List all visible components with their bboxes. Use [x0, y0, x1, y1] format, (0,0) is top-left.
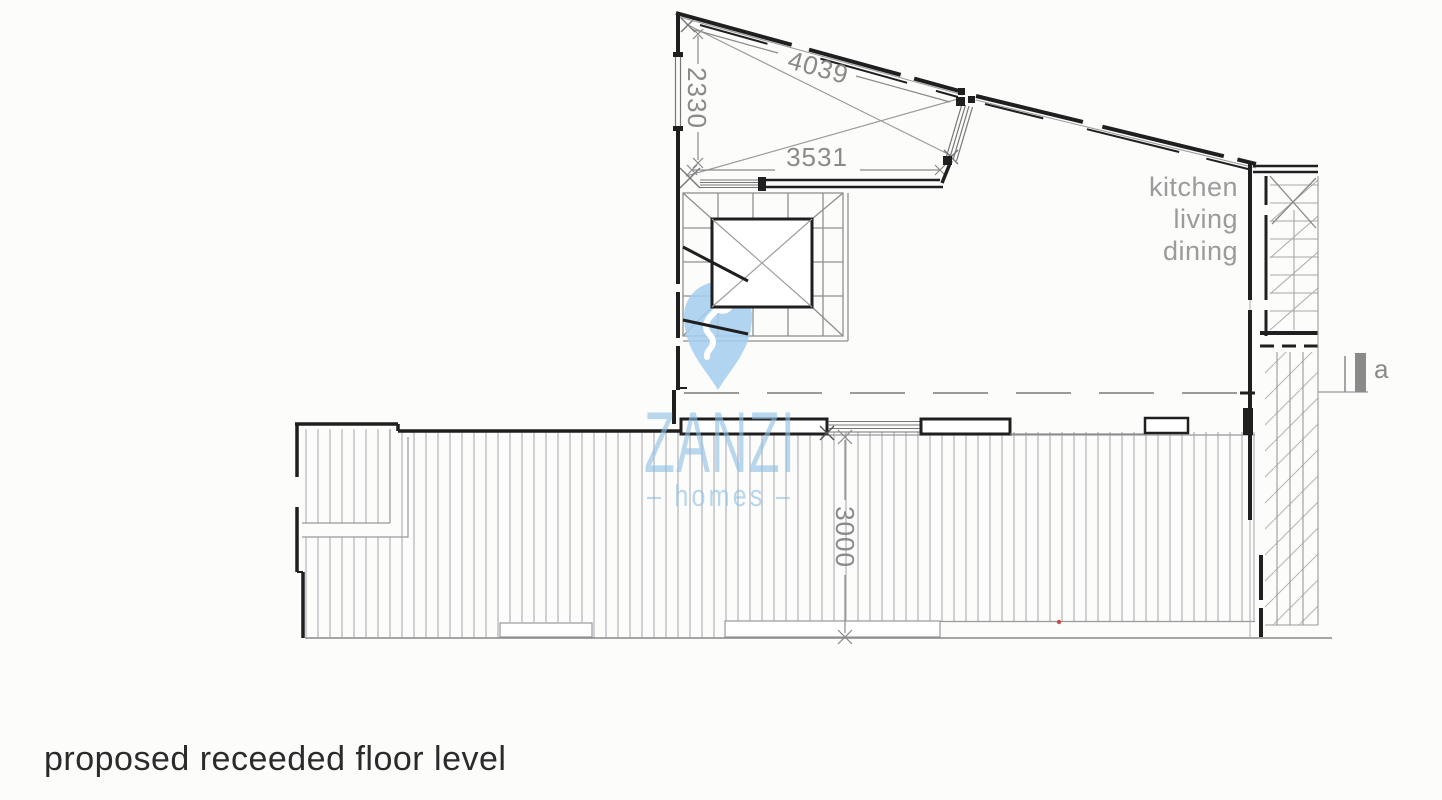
dimension-3531: 3531: [786, 142, 848, 172]
terrace-decking: [302, 429, 1332, 638]
floor-plan-page: a 4039 2330 3531 3000 kitchen living din…: [0, 0, 1442, 800]
room-label-living: living: [1173, 204, 1238, 234]
watermark-tagline: – homes –: [647, 478, 793, 513]
hatched-shaft: [1265, 176, 1318, 625]
dimension-3000: 3000: [830, 506, 860, 568]
neighbour-staircase: [1253, 166, 1318, 346]
room-label-dining: dining: [1163, 236, 1238, 266]
drawing-caption: proposed receeded floor level: [44, 740, 506, 778]
room-label: kitchen living dining: [1149, 172, 1238, 266]
red-dot-mark: [1057, 620, 1061, 624]
section-marker-bar: [1355, 353, 1366, 392]
floor-plan-drawing: a 4039 2330 3531 3000 kitchen living din…: [0, 0, 1442, 800]
zanzi-watermark: ZANZI – homes –: [644, 395, 796, 513]
watermark-brand: ZANZI: [644, 395, 796, 491]
section-marker-label: a: [1374, 354, 1389, 384]
dimension-2330: 2330: [682, 67, 712, 129]
section-marker: a: [1318, 353, 1389, 392]
room-label-kitchen: kitchen: [1149, 172, 1238, 202]
dimension-4039: 4039: [785, 45, 853, 90]
